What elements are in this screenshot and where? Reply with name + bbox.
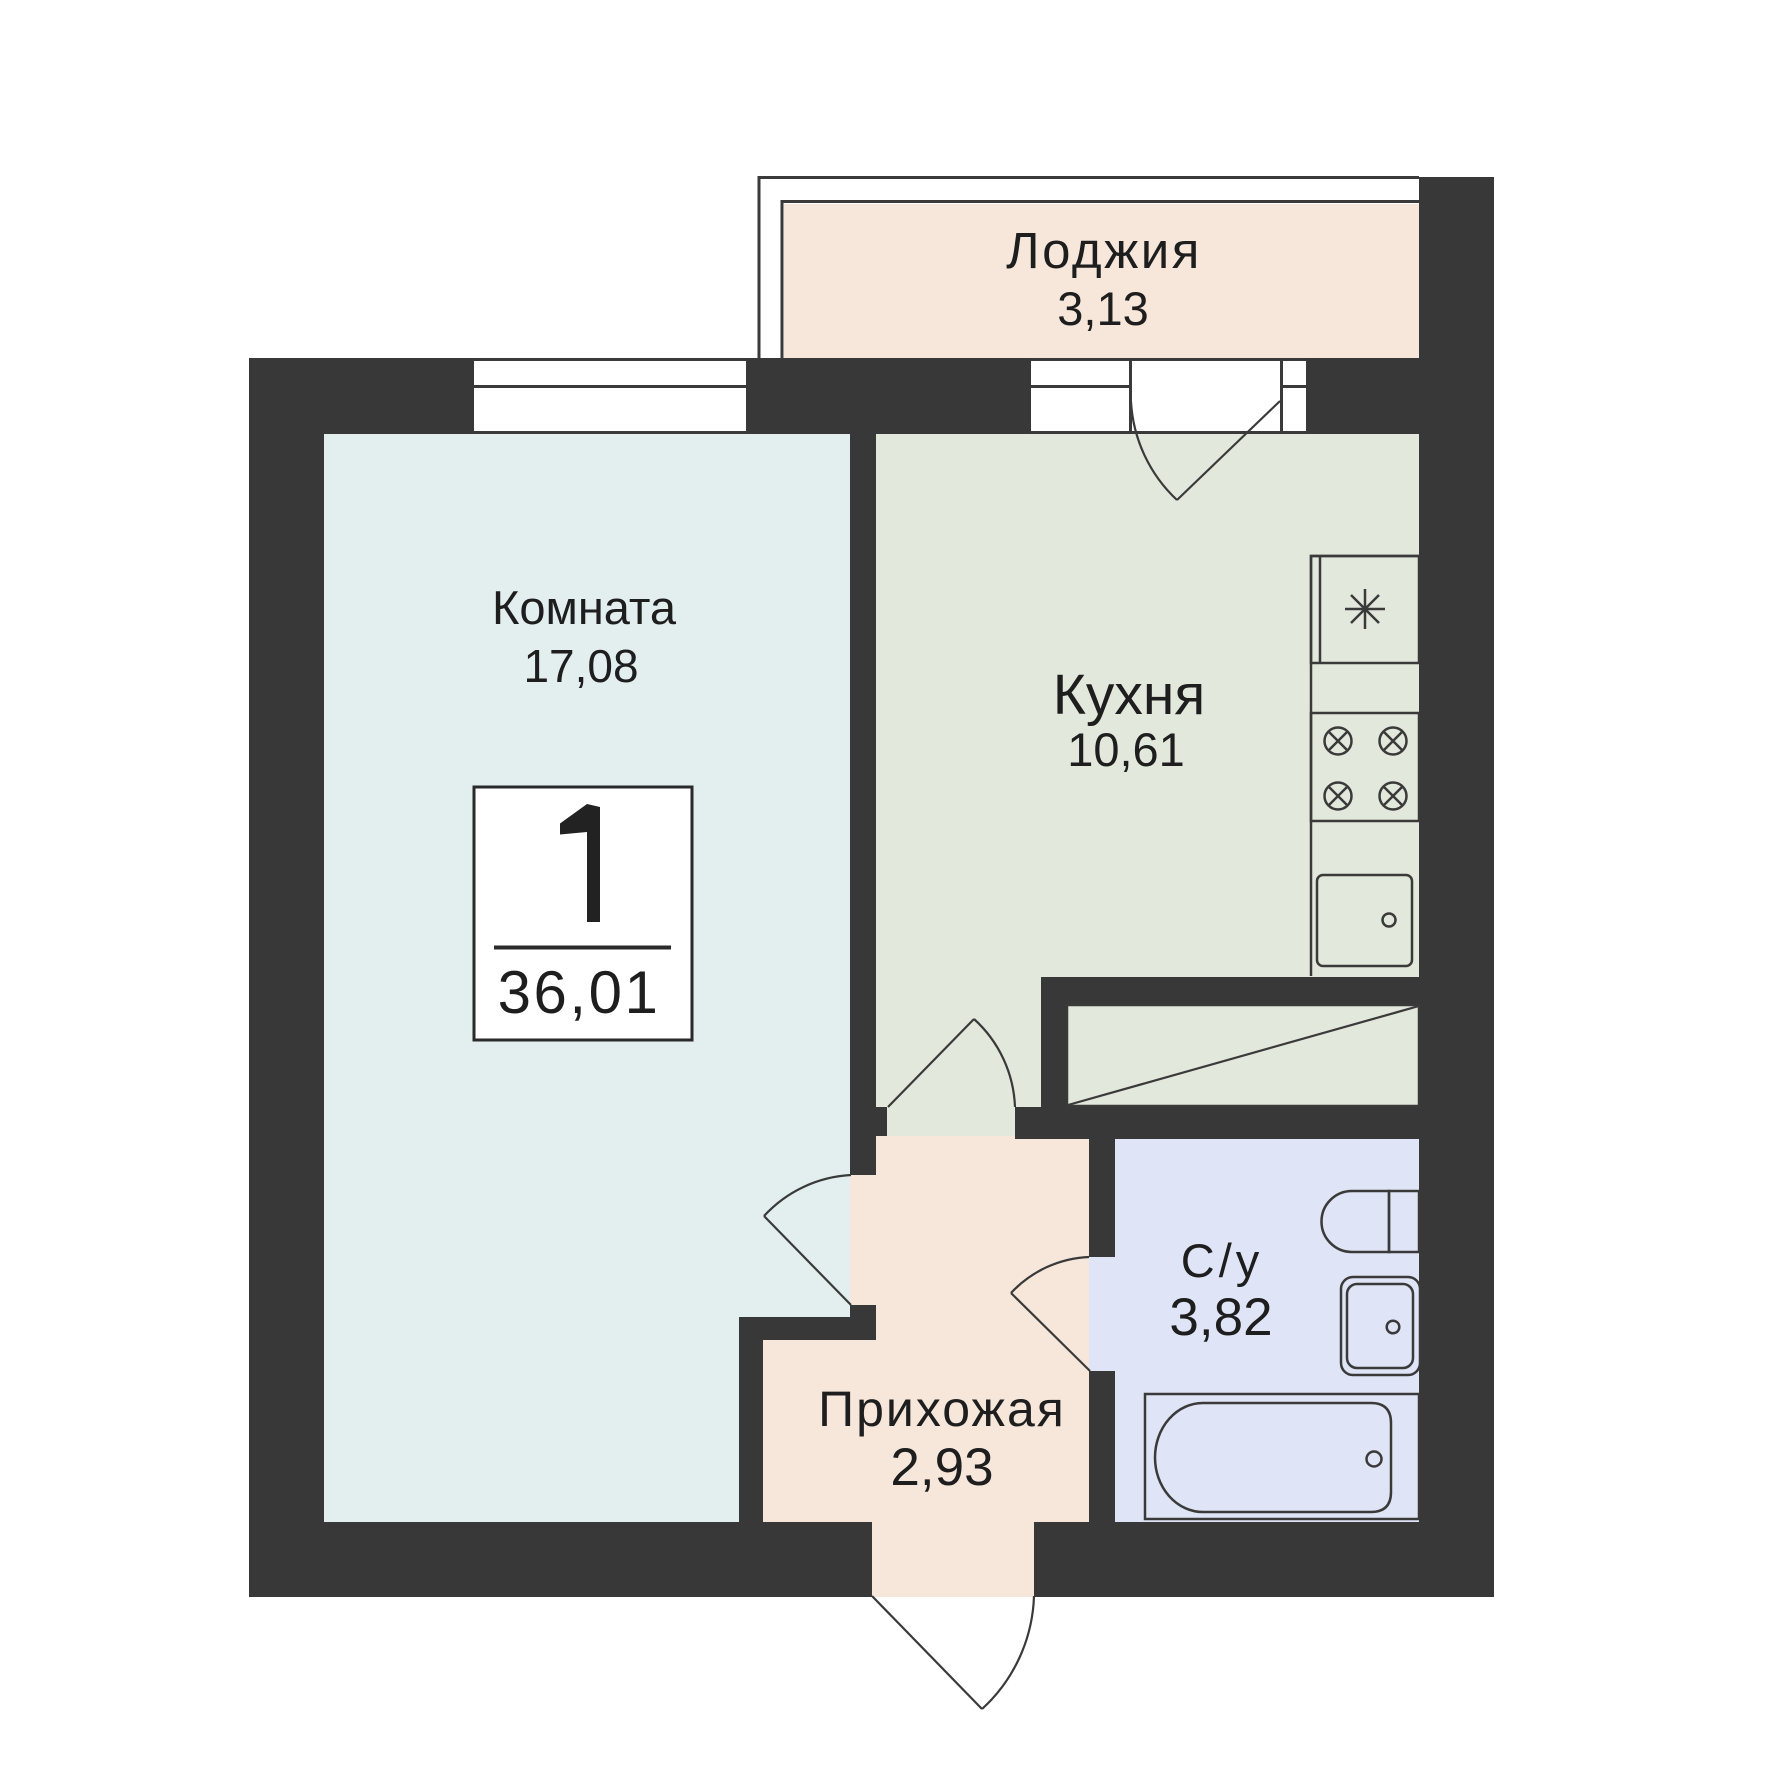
svg-text:3,82: 3,82 <box>1169 1288 1272 1347</box>
svg-text:Кухня: Кухня <box>1053 663 1206 727</box>
svg-text:17,08: 17,08 <box>523 640 638 692</box>
svg-text:Прихожая: Прихожая <box>818 1381 1066 1437</box>
svg-text:3,13: 3,13 <box>1057 282 1148 335</box>
svg-text:36,01: 36,01 <box>498 959 661 1026</box>
svg-text:10,61: 10,61 <box>1067 723 1185 776</box>
svg-text:2,93: 2,93 <box>890 1438 993 1497</box>
svg-text:Лоджия: Лоджия <box>1006 222 1202 279</box>
svg-text:Комната: Комната <box>492 581 677 634</box>
svg-text:С/у: С/у <box>1181 1234 1264 1287</box>
